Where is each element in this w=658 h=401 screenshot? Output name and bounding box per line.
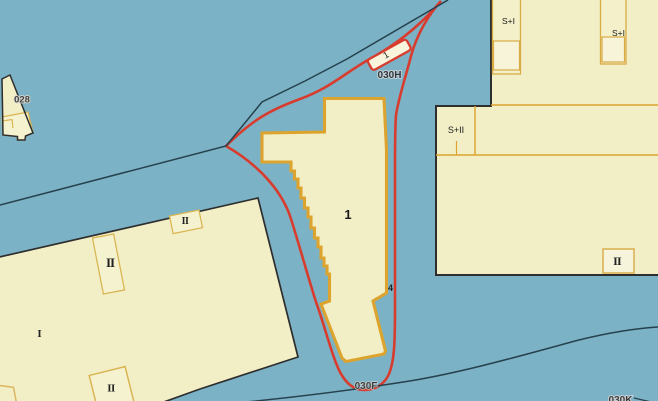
svg-text:II: II: [106, 255, 115, 270]
svg-text:II: II: [182, 216, 189, 227]
svg-text:030K: 030K: [609, 395, 634, 401]
svg-text:II: II: [107, 383, 115, 395]
svg-text:S+II: S+II: [448, 125, 464, 135]
svg-text:I: I: [37, 328, 41, 340]
svg-text:1: 1: [344, 207, 351, 222]
svg-text:S+I: S+I: [612, 28, 625, 38]
svg-text:028: 028: [14, 95, 30, 106]
svg-text:S+I: S+I: [502, 16, 515, 26]
svg-text:030F: 030F: [355, 381, 378, 392]
svg-text:030H: 030H: [378, 70, 402, 81]
svg-text:II: II: [613, 254, 622, 268]
svg-text:4: 4: [388, 283, 393, 293]
